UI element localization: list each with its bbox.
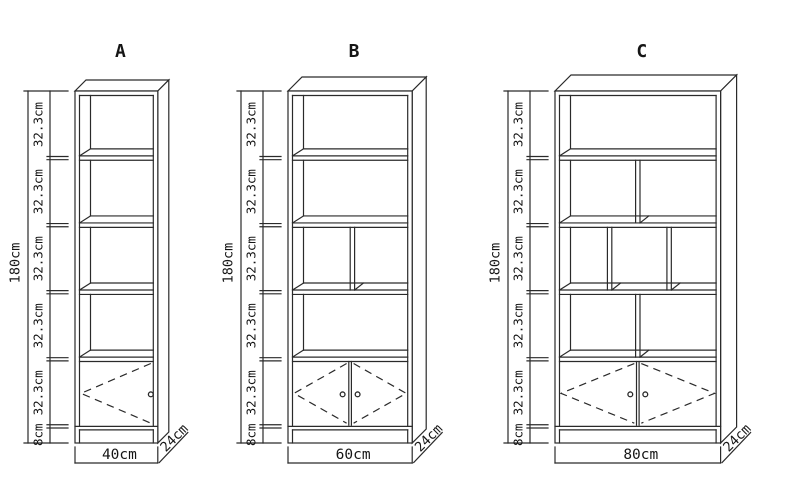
cabinet-side-face [412,77,426,443]
total-height-label: 180cm [8,243,24,284]
cabinet-top-face [75,80,169,91]
segment-dimension-label: 32.3cm [244,236,259,281]
segment-dimension-label: 32.3cm [31,370,46,415]
cabinet-B [288,77,426,443]
cabinet-A [75,80,169,443]
segment-dimension-label: 32.3cm [244,370,259,415]
height-dimension-B: 32.3cm32.3cm32.3cm32.3cm32.3cm8cm180cm [221,91,282,446]
segment-dimension-label: 32.3cm [244,303,259,348]
segment-dimension-label: 32.3cm [244,102,259,147]
cabinet-side-face [158,80,169,443]
segment-dimension-label: 8cm [511,423,526,446]
height-dimension-C: 32.3cm32.3cm32.3cm32.3cm32.3cm8cm180cm [488,91,549,446]
width-dimension-C: 80cm [555,447,721,463]
diagram-canvas: 32.3cm32.3cm32.3cm32.3cm32.3cm8cm180cm40… [0,0,790,500]
total-height-label: 180cm [488,243,504,284]
width-dimension-A: 40cm [75,447,158,463]
segment-dimension-label: 32.3cm [511,169,526,214]
cabinet-C [555,75,737,443]
door-knob-left [628,392,633,397]
segment-dimension-label: 8cm [244,423,259,446]
door-knob-right [643,392,648,397]
segment-dimension-label: 32.3cm [31,102,46,147]
segment-dimension-label: 32.3cm [244,169,259,214]
bookcase-dimension-diagram: 32.3cm32.3cm32.3cm32.3cm32.3cm8cm180cm40… [0,0,790,500]
segment-dimension-label: 32.3cm [511,303,526,348]
segment-dimension-label: 8cm [31,423,46,446]
cabinet-top-face [555,75,737,91]
width-dimension-B: 60cm [288,447,412,463]
height-dimension-A: 32.3cm32.3cm32.3cm32.3cm32.3cm8cm180cm [8,91,69,446]
width-label: 80cm [623,447,658,463]
segment-dimension-label: 32.3cm [511,370,526,415]
cabinet-title-A: A [115,41,126,62]
cabinet-side-face [721,75,737,443]
total-height-label: 180cm [221,243,237,284]
door-knob-right [355,392,360,397]
cabinet-title-C: C [636,41,647,62]
door-knob-left [340,392,345,397]
segment-dimension-label: 32.3cm [511,236,526,281]
segment-dimension-label: 32.3cm [31,236,46,281]
door-knob [148,392,153,397]
cabinet-front-face [555,91,721,443]
width-label: 60cm [336,447,371,463]
segment-dimension-label: 32.3cm [31,169,46,214]
segment-dimension-label: 32.3cm [511,102,526,147]
segment-dimension-label: 32.3cm [31,303,46,348]
width-label: 40cm [102,447,137,463]
cabinet-title-B: B [349,41,360,62]
cabinet-top-face [288,77,426,91]
